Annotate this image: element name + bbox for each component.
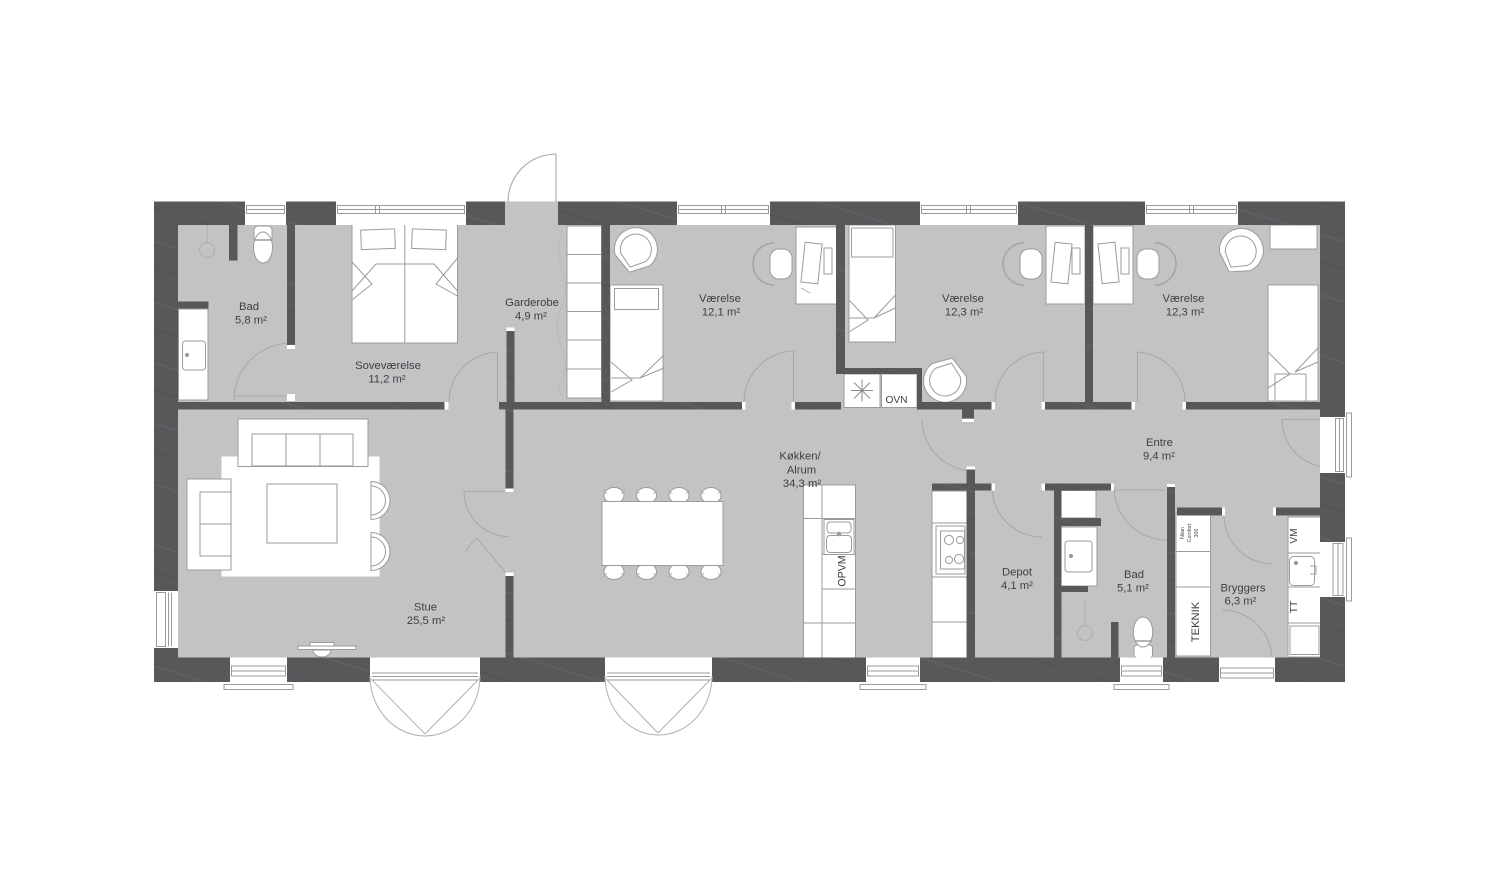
svg-text:5,8 m²: 5,8 m² [235,315,267,327]
svg-text:Alrum: Alrum [787,464,816,476]
svg-text:Stue: Stue [414,602,437,614]
svg-text:OPVM: OPVM [837,555,849,586]
svg-text:Nilan: Nilan [1180,527,1186,539]
svg-text:12,1 m²: 12,1 m² [702,307,740,319]
svg-text:Garderobe: Garderobe [505,297,559,309]
svg-text:Depot: Depot [1002,567,1033,579]
svg-text:Værelse: Værelse [699,293,741,305]
svg-text:TT: TT [1289,601,1300,613]
svg-text:6,3 m²: 6,3 m² [1225,596,1257,608]
svg-text:Entre: Entre [1146,437,1173,449]
svg-text:4,1 m²: 4,1 m² [1001,580,1033,592]
svg-text:Bryggers: Bryggers [1220,583,1265,595]
svg-text:Køkken/: Køkken/ [779,451,821,463]
svg-text:OVN: OVN [885,395,907,406]
svg-text:9,4 m²: 9,4 m² [1143,451,1175,463]
svg-text:34,3 m²: 34,3 m² [783,478,821,490]
svg-text:Comfort: Comfort [1187,523,1193,542]
svg-text:25,5 m²: 25,5 m² [407,615,445,627]
svg-text:Bad: Bad [1124,569,1144,581]
svg-text:12,3 m²: 12,3 m² [945,307,983,319]
svg-text:Bad: Bad [239,301,259,313]
svg-text:VM: VM [1289,528,1300,543]
svg-text:Værelse: Værelse [942,293,984,305]
svg-text:11,2 m²: 11,2 m² [368,374,406,386]
svg-text:Værelse: Værelse [1163,293,1205,305]
svg-text:300: 300 [1194,529,1200,538]
svg-text:4,9 m²: 4,9 m² [515,311,547,323]
svg-text:5,1 m²: 5,1 m² [1117,583,1149,595]
svg-text:Soveværelse: Soveværelse [355,360,421,372]
svg-text:12,3 m²: 12,3 m² [1166,307,1204,319]
svg-text:TEKNIK: TEKNIK [1190,601,1202,642]
